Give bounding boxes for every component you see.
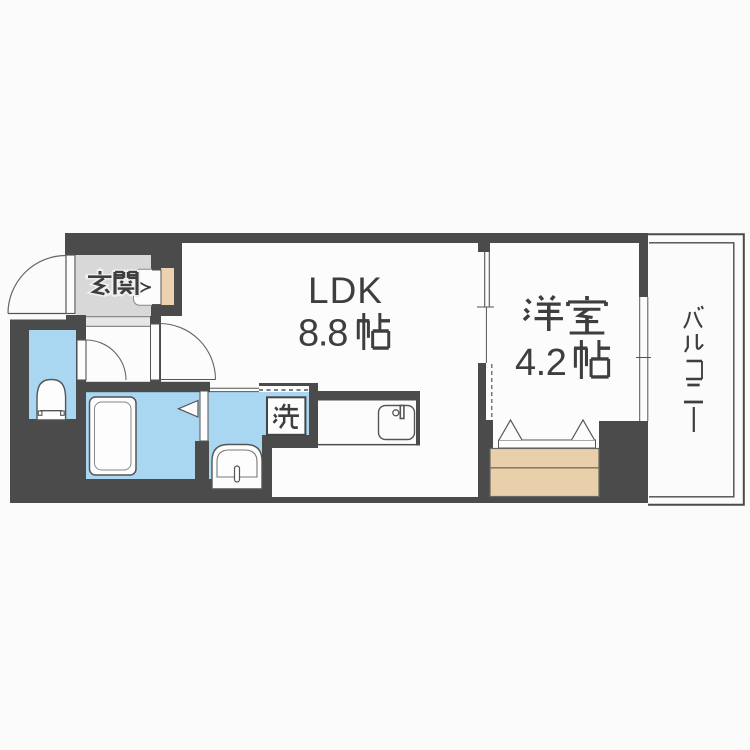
svg-text:8.8: 8.8 xyxy=(298,313,347,355)
svg-text:4.2: 4.2 xyxy=(515,342,566,384)
svg-text:LDK: LDK xyxy=(308,270,383,311)
